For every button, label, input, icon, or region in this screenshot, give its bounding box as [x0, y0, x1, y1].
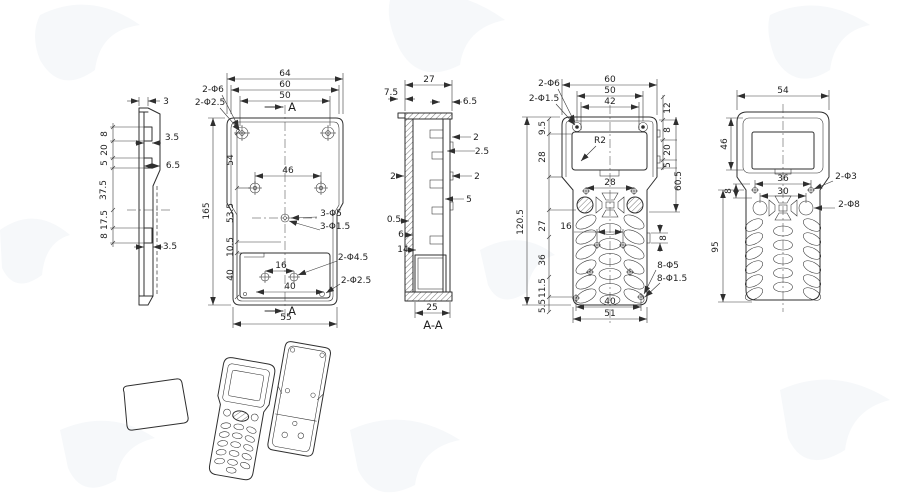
screw-boss [259, 271, 271, 283]
dim-label: 51 [604, 309, 615, 319]
dim-label: 28 [604, 178, 616, 188]
hole-callout: 2-Φ1.5 [529, 94, 559, 104]
screw-boss [639, 123, 648, 132]
dim-label: 20 [100, 144, 110, 156]
dim-label: 2 [473, 133, 479, 143]
dim-label: 64 [279, 69, 291, 79]
dim-label: 60 [279, 80, 291, 90]
dim-label: 6.5 [166, 161, 180, 171]
dim-label: 42 [604, 97, 615, 107]
dim-label: 54 [226, 154, 236, 166]
dim-label: 120.5 [516, 209, 526, 235]
dim-label: 6 [398, 230, 404, 240]
dim-label: 25 [426, 303, 437, 313]
view-3d-exploded [123, 341, 331, 482]
hole-callout: 3-Φ1.5 [320, 222, 350, 232]
dim-label: 5 [663, 162, 673, 168]
round-key [799, 201, 813, 215]
dim-label: 2 [390, 172, 396, 182]
hole-callout: 2-Φ3 [835, 172, 857, 182]
section-mark: A [288, 100, 296, 114]
round-key [753, 201, 767, 215]
view-back-case-inner: 64 60 50 2-Φ6 2-Φ2.5 165 54 53.5 10.5 40… [195, 69, 371, 328]
lens-3d [123, 379, 188, 430]
dim-label: 3.5 [163, 242, 177, 252]
corner-hole [243, 292, 246, 295]
dim-label: 60.5 [674, 171, 684, 191]
dim-label: 36 [777, 174, 789, 184]
hole-callout: 2-Φ2.5 [341, 276, 371, 286]
dim-label: 30 [777, 187, 789, 197]
section-mark: A [288, 304, 296, 318]
dim-label: 8 [663, 127, 673, 133]
dim-label: 0.5 [387, 215, 401, 225]
cad-drawing: 3 8 20 5 37.5 17.5 8 3.5 6.5 3.5 64 60 5… [0, 0, 900, 500]
dim-label: 5 [466, 195, 472, 205]
screw-boss [320, 125, 336, 141]
hole-callout: 2-Φ2.5 [195, 98, 225, 108]
dim-label: 17.5 [100, 210, 110, 230]
dim-label: 16 [275, 261, 287, 271]
dim-label: 28 [538, 151, 548, 163]
dim-label: 95 [711, 241, 721, 252]
hole-callout: 2-Φ8 [838, 200, 860, 210]
lcd-window [572, 132, 647, 170]
dim-label: 11.5 [538, 278, 548, 298]
dim-label: 46 [720, 138, 730, 150]
screw-boss [314, 181, 328, 195]
round-key [577, 197, 593, 213]
round-key [627, 197, 643, 213]
view-front-case: 60 50 42 2-Φ6 2-Φ1.5 9.5 28 27 36 11.5 5… [516, 75, 687, 325]
hole-callout: 8-Φ5 [657, 261, 679, 271]
dim-label: 165 [202, 202, 212, 219]
dim-label: 37.5 [99, 180, 109, 200]
dim-label: 20 [663, 144, 673, 156]
dim-label: 3 [163, 97, 169, 107]
dim-label: 5.5 [538, 299, 548, 313]
hole-callout: 3-Φ5 [320, 209, 342, 219]
hole-callout: 2-Φ6 [538, 79, 560, 89]
battery-well [415, 255, 446, 292]
section-title: A-A [423, 318, 443, 332]
drawing-sheet: 3 8 20 5 37.5 17.5 8 3.5 6.5 3.5 64 60 5… [0, 0, 900, 500]
view-section-aa: 27 7.5 6.5 2 2.5 2 5 2 0.5 6 14 25 A-A [384, 75, 489, 332]
dim-label: 8 [100, 233, 110, 239]
dim-label: 54 [777, 86, 789, 96]
dim-label: 46 [282, 166, 294, 176]
dim-label: 2 [474, 172, 480, 182]
dim-label: 5 [100, 160, 110, 166]
dim-label: 14 [397, 245, 409, 255]
dim-label: 27 [423, 75, 434, 85]
dim-label: 8 [100, 131, 110, 137]
screw-boss [248, 181, 262, 195]
dim-label: 40 [604, 297, 616, 307]
dim-label: 27 [538, 220, 548, 231]
view-side-profile: 3 8 20 5 37.5 17.5 8 3.5 6.5 3.5 [99, 97, 180, 305]
dim-label: 40 [284, 282, 296, 292]
dim-label: 36 [538, 254, 548, 266]
dim-label: 60 [604, 75, 616, 85]
dim-label: 10.5 [226, 237, 236, 257]
hole-callout: 2-Φ4.5 [338, 253, 368, 263]
back-shell-3d [267, 341, 331, 457]
dim-label: 40 [226, 269, 236, 281]
dim-label: 53.5 [226, 203, 236, 223]
dim-label: 8 [659, 235, 669, 241]
hole-callout: 2-Φ6 [202, 85, 224, 95]
dim-label: 7.5 [384, 88, 398, 98]
view-front-case-outer: 54 46 36 30 8 95 2-Φ3 2-Φ8 [711, 86, 860, 312]
radius-callout: R2 [594, 136, 606, 146]
watermark [0, 0, 890, 492]
dim-label: 3.5 [165, 133, 179, 143]
front-unit-3d [204, 356, 276, 481]
dim-label: 12 [663, 102, 673, 113]
dim-label: 6.5 [463, 97, 477, 107]
dim-label: 16 [560, 222, 572, 232]
dim-label: 8 [724, 188, 734, 194]
dim-label: 9.5 [538, 121, 548, 135]
dim-label: 50 [604, 86, 616, 96]
dim-label: 2.5 [475, 147, 489, 157]
hole-callout: 8-Φ1.5 [657, 274, 687, 284]
